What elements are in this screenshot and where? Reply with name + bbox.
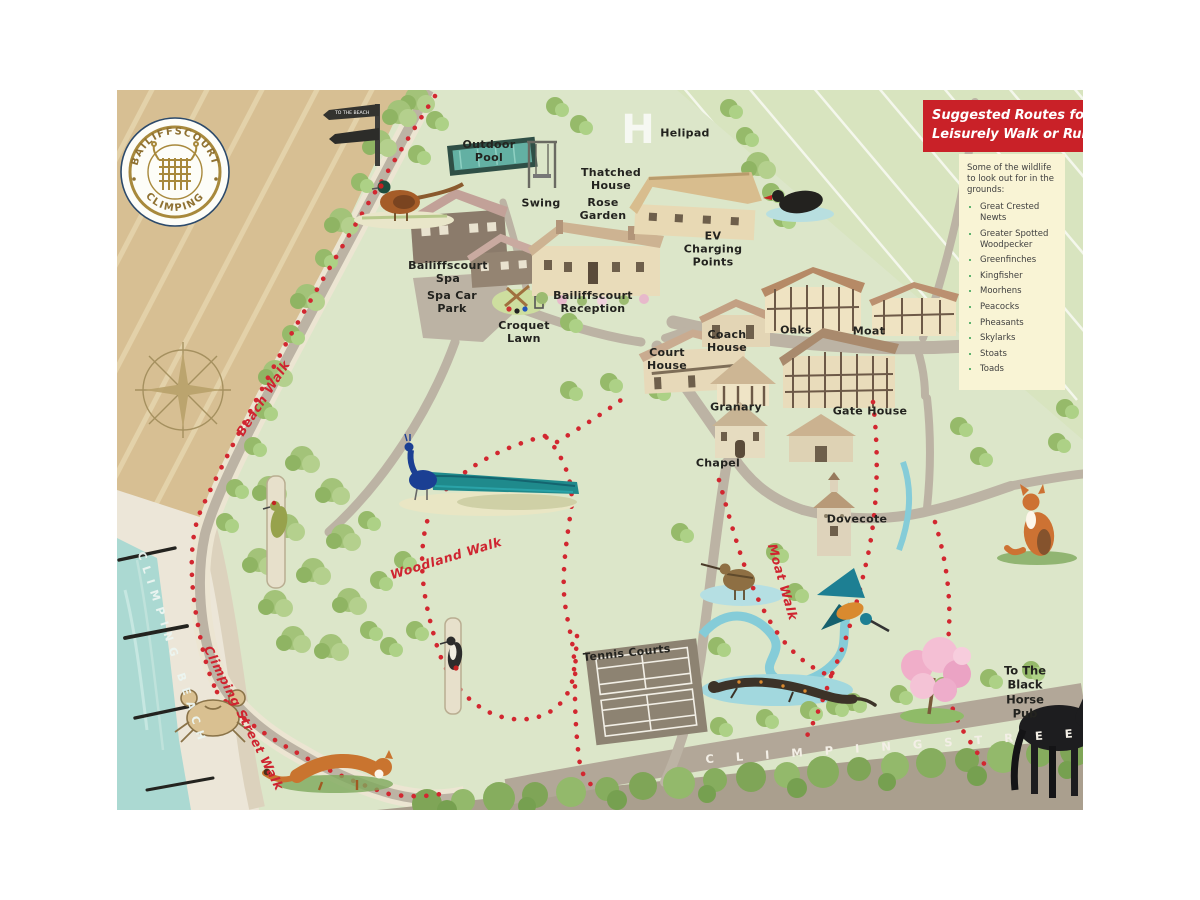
banner-line-1: Suggested Routes for a — [932, 107, 1076, 126]
label-granary: Granary — [710, 402, 762, 415]
label-moat: Moat — [853, 326, 885, 339]
label-bailiffscourt-spa: Bailiffscourt Spa — [408, 260, 488, 286]
green-woodpecker-illustration — [263, 476, 290, 588]
bailiffscourt-logo: BAILIFFSCOURT CLIMPING — [117, 114, 233, 230]
label-black-horse-pub: To The Black Horse Pub — [996, 663, 1054, 721]
wildlife-item: Skylarks — [980, 333, 1057, 344]
wildlife-item: Toads — [980, 364, 1057, 375]
label-coach-house: Coach House — [707, 329, 747, 355]
label-thatched-house: Thatched House — [581, 167, 641, 193]
wildlife-item: Peacocks — [980, 302, 1057, 313]
label-gate-house: Gate House — [833, 406, 908, 419]
label-dovecote: Dovecote — [827, 514, 888, 527]
compass-rose-icon — [135, 342, 231, 438]
label-outdoor-pool: Outdoor Pool — [463, 139, 516, 165]
wildlife-intro: Some of the wildlife to look out for in … — [967, 163, 1057, 196]
banner-line-2: Leisurely Walk or Run — [932, 126, 1076, 145]
helipad-h-icon: H — [621, 107, 654, 153]
label-spa-car-park: Spa Car Park — [427, 290, 477, 316]
wildlife-item: Greater Spotted Woodpecker — [980, 229, 1057, 251]
wildlife-item: Pheasants — [980, 318, 1057, 329]
label-helipad: Helipad — [660, 128, 709, 141]
wildlife-list: Great Crested Newts Greater Spotted Wood… — [967, 202, 1057, 375]
wildlife-item: Stoats — [980, 349, 1057, 360]
label-oaks: Oaks — [780, 325, 812, 338]
wildlife-item: Moorhens — [980, 286, 1057, 297]
label-rose-garden: Rose Garden — [580, 197, 627, 223]
label-court-house: Court House — [647, 347, 687, 373]
label-reception: Bailiffscourt Reception — [553, 290, 633, 316]
wildlife-item: Kingfisher — [980, 271, 1057, 282]
label-swing: Swing — [521, 198, 560, 211]
signpost-text: TO THE BEACH — [334, 110, 369, 116]
label-croquet-lawn: Croquet Lawn — [498, 320, 550, 346]
wildlife-item: Greenfinches — [980, 255, 1057, 266]
suggested-routes-banner: Suggested Routes for a Leisurely Walk or… — [923, 100, 1083, 152]
wildlife-item: Great Crested Newts — [980, 202, 1057, 224]
label-ev-charging: EV Charging Points — [684, 231, 743, 270]
estate-map: TO THE BEACH — [117, 90, 1083, 810]
label-chapel: Chapel — [696, 458, 740, 471]
wildlife-panel: Some of the wildlife to look out for in … — [959, 154, 1065, 390]
